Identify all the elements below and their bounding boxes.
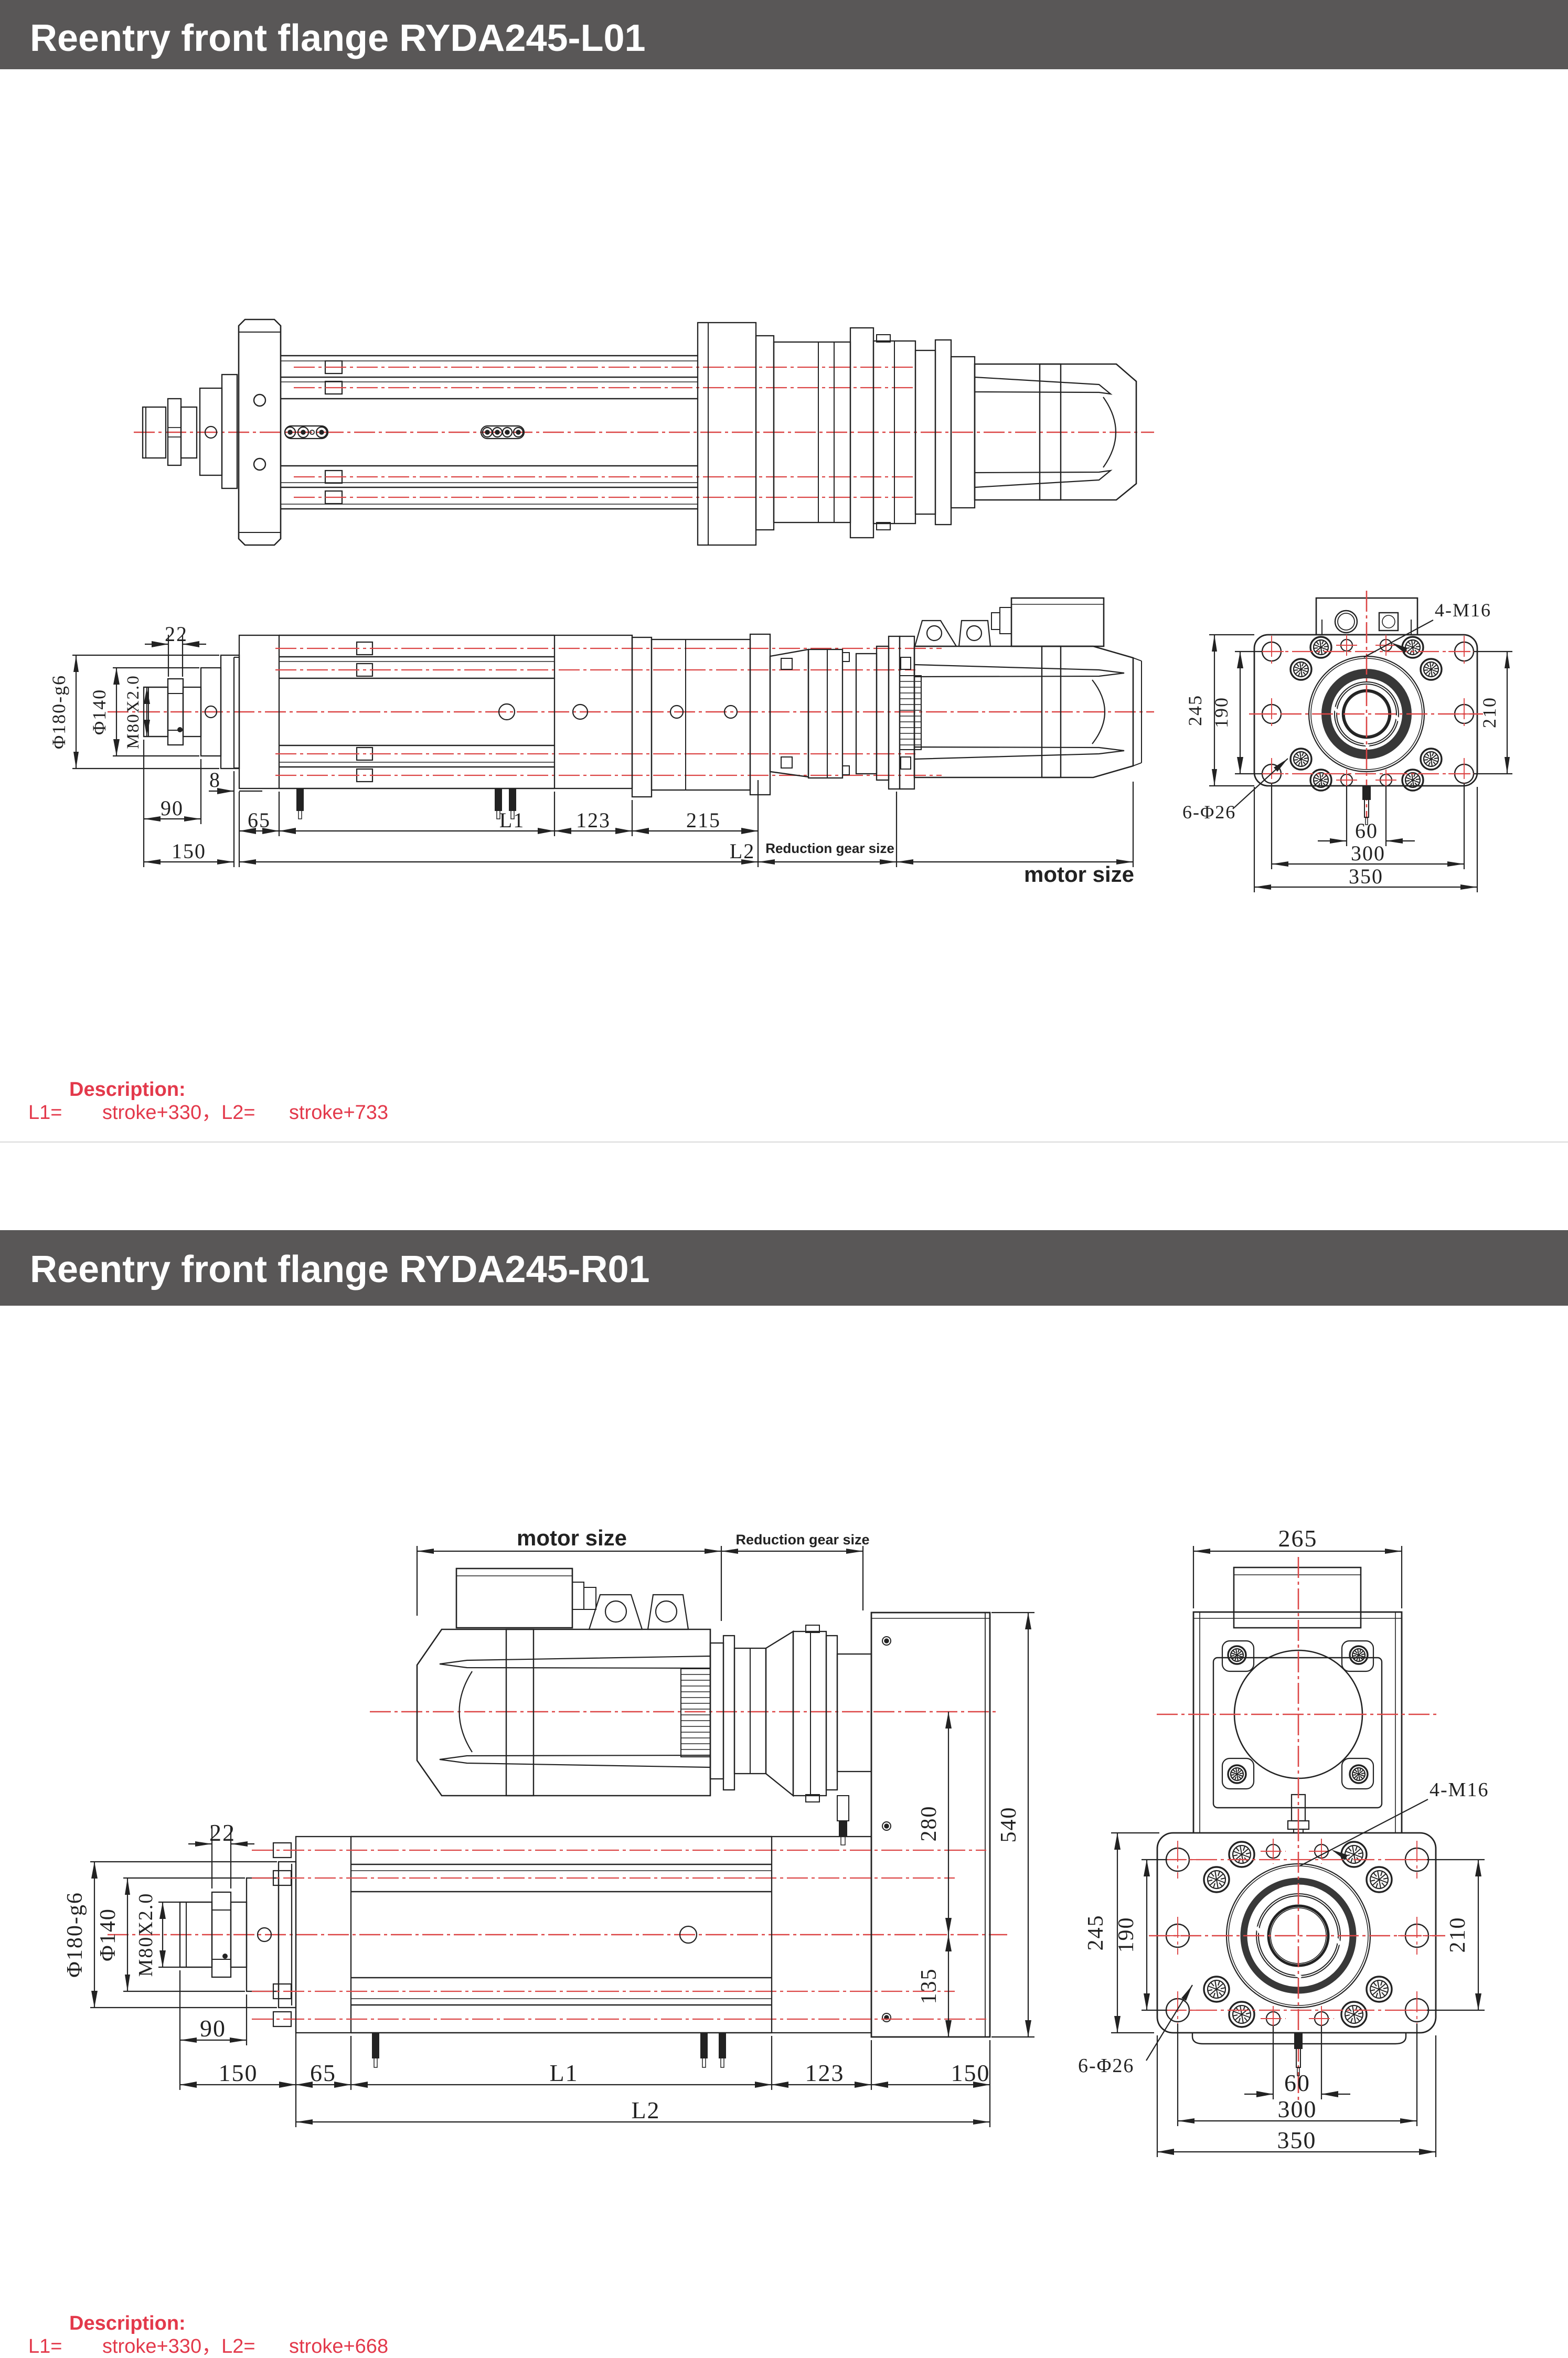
svg-text:L1=: L1= <box>28 1102 62 1124</box>
svg-text:L1: L1 <box>499 808 525 832</box>
svg-text:Description:: Description: <box>69 2312 186 2334</box>
svg-text:stroke+668: stroke+668 <box>289 2335 388 2355</box>
svg-text:22: 22 <box>165 622 188 646</box>
svg-text:540: 540 <box>997 1807 1021 1843</box>
svg-text:65: 65 <box>310 2060 336 2086</box>
svg-text:300: 300 <box>1278 2096 1317 2122</box>
svg-text:M80X2.0: M80X2.0 <box>135 1893 157 1977</box>
svg-text:300: 300 <box>1351 841 1385 865</box>
svg-text:190: 190 <box>1114 1917 1138 1953</box>
svg-text:65: 65 <box>248 808 271 832</box>
svg-text:210: 210 <box>1479 697 1500 728</box>
svg-text:190: 190 <box>1211 697 1232 728</box>
svg-text:L2: L2 <box>631 2097 660 2124</box>
svg-text:245: 245 <box>1185 695 1206 726</box>
svg-text:123: 123 <box>805 2060 845 2086</box>
svg-text:150: 150 <box>951 2060 990 2086</box>
svg-text:Reduction gear size: Reduction gear size <box>765 840 894 856</box>
svg-text:350: 350 <box>1277 2127 1317 2153</box>
svg-text:215: 215 <box>686 808 721 832</box>
svg-text:90: 90 <box>200 2015 226 2042</box>
svg-text:stroke+330，L2=: stroke+330，L2= <box>102 2335 255 2355</box>
svg-text:4-M16: 4-M16 <box>1435 600 1491 621</box>
svg-text:Φ140: Φ140 <box>96 1908 120 1961</box>
svg-text:Reentry front flange RYDA245-L: Reentry front flange RYDA245-L01 <box>30 17 646 59</box>
svg-text:265: 265 <box>1278 1525 1318 1552</box>
svg-text:245: 245 <box>1084 1915 1108 1951</box>
svg-text:123: 123 <box>576 808 611 832</box>
svg-text:60: 60 <box>1355 819 1378 842</box>
svg-text:8: 8 <box>209 768 221 792</box>
svg-text:90: 90 <box>161 796 184 820</box>
svg-text:Description:: Description: <box>69 1079 186 1101</box>
svg-text:Φ180-g6: Φ180-g6 <box>48 675 69 749</box>
svg-text:150: 150 <box>219 2060 258 2086</box>
svg-text:210: 210 <box>1446 1917 1470 1953</box>
svg-text:L1=: L1= <box>28 2335 62 2355</box>
svg-text:135: 135 <box>917 1968 941 2004</box>
svg-text:motor size: motor size <box>517 1525 627 1550</box>
svg-text:60: 60 <box>1284 2069 1310 2096</box>
svg-text:stroke+330，L2=: stroke+330，L2= <box>102 1102 255 1124</box>
svg-text:22: 22 <box>209 1819 236 1846</box>
svg-text:Reentry front flange RYDA245-R: Reentry front flange RYDA245-R01 <box>30 1249 650 1290</box>
svg-text:Reduction gear size: Reduction gear size <box>735 1532 869 1548</box>
svg-text:6-Φ26: 6-Φ26 <box>1182 802 1236 823</box>
svg-text:L1: L1 <box>549 2060 578 2086</box>
svg-text:6-Φ26: 6-Φ26 <box>1078 2055 1134 2077</box>
svg-text:280: 280 <box>917 1806 941 1842</box>
svg-text:stroke+733: stroke+733 <box>289 1102 388 1124</box>
svg-text:350: 350 <box>1349 865 1383 888</box>
svg-text:Φ140: Φ140 <box>89 689 110 735</box>
svg-text:motor size: motor size <box>1024 862 1134 887</box>
svg-text:150: 150 <box>172 839 206 863</box>
svg-text:L2: L2 <box>730 839 755 863</box>
svg-text:M80X2.0: M80X2.0 <box>124 675 143 749</box>
svg-text:4-M16: 4-M16 <box>1430 1779 1489 1801</box>
svg-text:Φ180-g6: Φ180-g6 <box>63 1892 87 1978</box>
